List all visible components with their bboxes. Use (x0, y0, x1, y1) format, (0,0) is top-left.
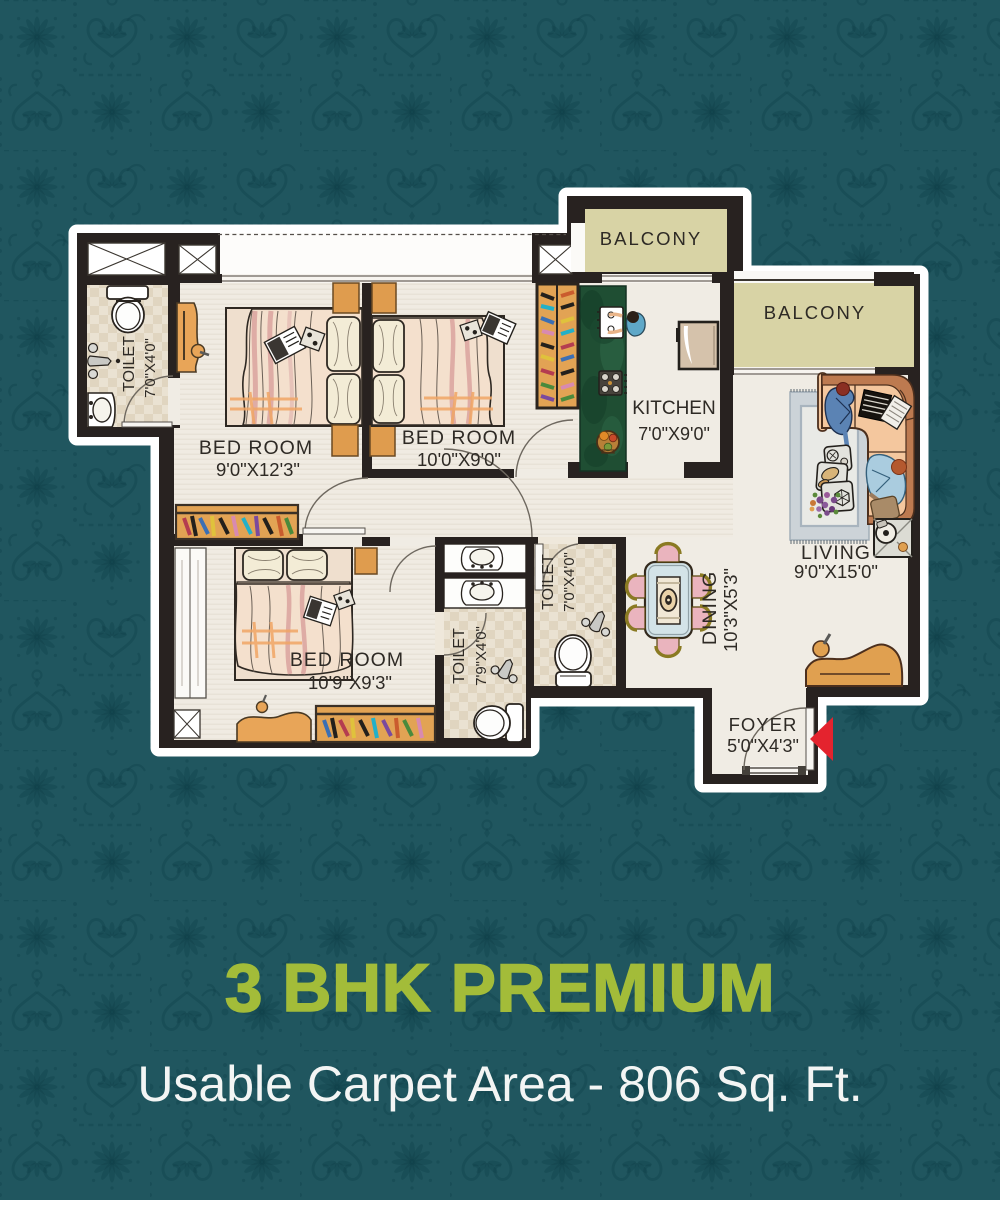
svg-text:BALCONY: BALCONY (764, 302, 866, 323)
svg-text:10'0"X9'0": 10'0"X9'0" (417, 449, 501, 470)
svg-text:10'3"X5'3": 10'3"X5'3" (720, 568, 741, 652)
svg-text:3 BHK PREMIUM: 3 BHK PREMIUM (225, 950, 776, 1026)
svg-text:TOILET: TOILET (121, 336, 138, 392)
svg-text:7'0"X4'0": 7'0"X4'0" (561, 552, 578, 612)
svg-text:FOYER: FOYER (729, 714, 798, 735)
svg-text:BED ROOM: BED ROOM (402, 427, 516, 449)
svg-text:BALCONY: BALCONY (600, 228, 702, 249)
svg-text:BED ROOM: BED ROOM (199, 437, 313, 459)
svg-text:DINING: DINING (699, 571, 721, 645)
svg-text:KITCHEN: KITCHEN (632, 398, 715, 419)
svg-text:TOILET: TOILET (451, 628, 468, 684)
svg-text:5'0"X4'3": 5'0"X4'3" (727, 736, 799, 756)
svg-text:9'0"X15'0": 9'0"X15'0" (794, 561, 878, 582)
svg-text:7'0"X4'0": 7'0"X4'0" (142, 338, 159, 398)
svg-text:7'0"X9'0": 7'0"X9'0" (638, 424, 710, 444)
svg-text:9'0"X12'3": 9'0"X12'3" (216, 459, 300, 480)
svg-text:Usable Carpet Area - 806 Sq. F: Usable Carpet Area - 806 Sq. Ft. (137, 1056, 862, 1112)
svg-text:BED ROOM: BED ROOM (290, 649, 404, 671)
svg-text:7'9"X4'0": 7'9"X4'0" (473, 626, 490, 686)
svg-text:10'9"X9'3": 10'9"X9'3" (308, 672, 392, 693)
svg-text:TOILET: TOILET (540, 554, 557, 610)
